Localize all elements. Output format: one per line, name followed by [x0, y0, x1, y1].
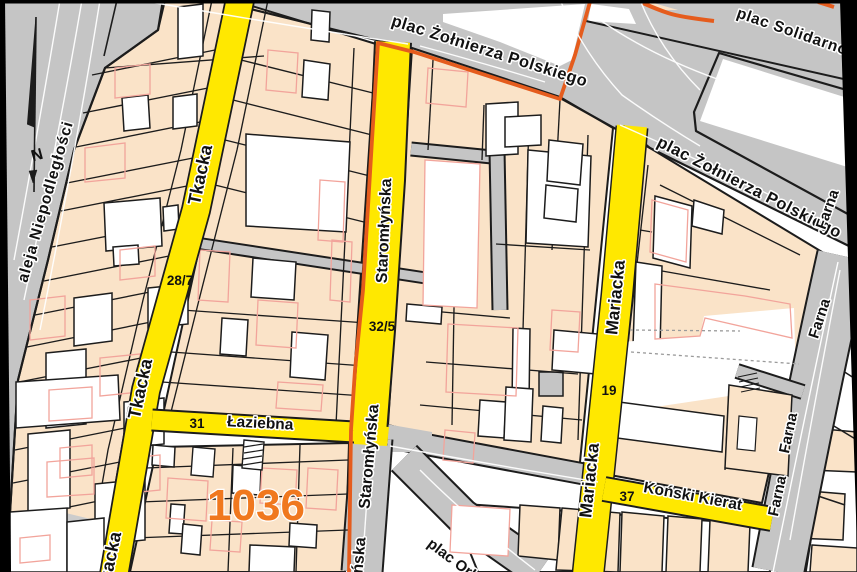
svg-text:32/5: 32/5 [369, 319, 396, 334]
svg-text:28/7: 28/7 [167, 273, 193, 288]
svg-text:31: 31 [189, 416, 205, 431]
svg-text:19: 19 [601, 383, 616, 398]
svg-text:Łaziebna: Łaziebna [227, 413, 294, 433]
svg-text:1036: 1036 [207, 481, 305, 530]
svg-text:37: 37 [619, 489, 634, 504]
